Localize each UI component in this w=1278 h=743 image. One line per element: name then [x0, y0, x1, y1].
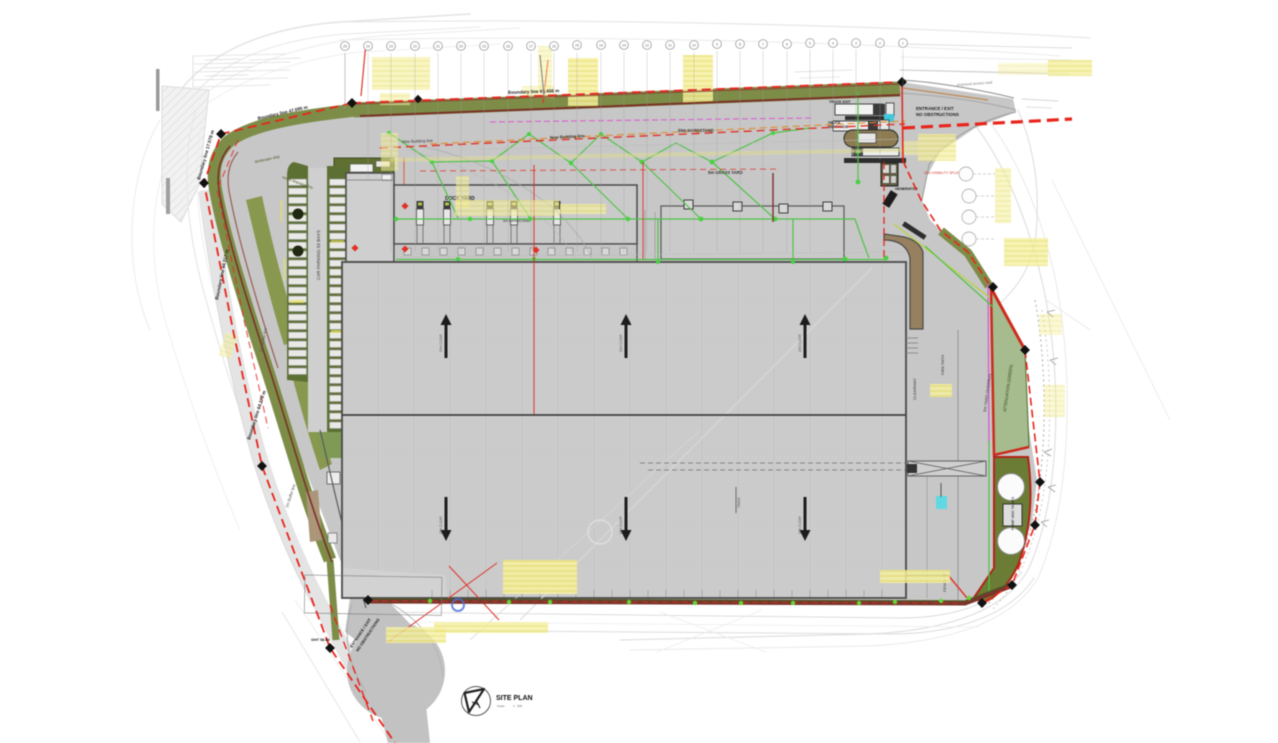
- svg-text:NO OBSTRUCTIONS: NO OBSTRUCTIONS: [916, 112, 959, 117]
- svg-text:CAR PARKING 59 BAYS: CAR PARKING 59 BAYS: [316, 230, 321, 280]
- svg-text:GHT 08-06: GHT 08-06: [311, 638, 330, 642]
- svg-text:25: 25: [343, 45, 347, 49]
- svg-text:CLEARWAY: CLEARWAY: [912, 378, 917, 400]
- svg-text:19: 19: [482, 45, 486, 49]
- svg-text:TRACK: TRACK: [737, 496, 741, 508]
- svg-text:13m CLEAR: 13m CLEAR: [798, 334, 802, 352]
- svg-text:1 : 500: 1 : 500: [513, 704, 523, 708]
- svg-text:TRUCK EXIT: TRUCK EXIT: [829, 100, 851, 104]
- svg-text:13m CLEAR: 13m CLEAR: [619, 334, 623, 352]
- svg-text:8: 8: [739, 43, 741, 47]
- svg-text:24: 24: [366, 45, 370, 49]
- svg-text:20: 20: [459, 45, 463, 49]
- svg-text:FIRE PATH: FIRE PATH: [940, 355, 945, 375]
- svg-text:SITE PLAN: SITE PLAN: [496, 695, 533, 702]
- svg-text:23: 23: [389, 45, 393, 49]
- svg-text:PUMP AND TANKS: PUMP AND TANKS: [1011, 496, 1015, 530]
- svg-text:30m VISIBILITY SPLAY: 30m VISIBILITY SPLAY: [924, 171, 961, 175]
- svg-text:17: 17: [529, 45, 533, 49]
- svg-text:16: 16: [552, 45, 556, 49]
- svg-text:6: 6: [786, 43, 788, 47]
- svg-text:4: 4: [832, 42, 834, 46]
- svg-text:5m GRASS YARD: 5m GRASS YARD: [708, 170, 743, 175]
- svg-text:22: 22: [413, 45, 417, 49]
- svg-text:ENTRANCE / EXIT: ENTRANCE / EXIT: [916, 106, 954, 111]
- svg-text:3: 3: [855, 42, 857, 46]
- svg-text:11: 11: [668, 44, 672, 48]
- svg-text:13: 13: [622, 44, 626, 48]
- svg-text:Scale: Scale: [497, 704, 505, 708]
- svg-text:7: 7: [762, 43, 764, 47]
- svg-text:1: 1: [902, 42, 904, 46]
- svg-text:2: 2: [879, 42, 881, 46]
- svg-text:50m HARDSTAND: 50m HARDSTAND: [678, 128, 714, 133]
- svg-text:13m CLEAR: 13m CLEAR: [439, 334, 443, 352]
- svg-text:18: 18: [506, 45, 510, 49]
- svg-text:15: 15: [575, 44, 579, 48]
- svg-text:10: 10: [692, 44, 696, 48]
- svg-text:9: 9: [716, 43, 718, 47]
- svg-text:14: 14: [599, 44, 603, 48]
- svg-text:12: 12: [645, 44, 649, 48]
- svg-text:21: 21: [436, 45, 440, 49]
- svg-text:5: 5: [809, 42, 811, 46]
